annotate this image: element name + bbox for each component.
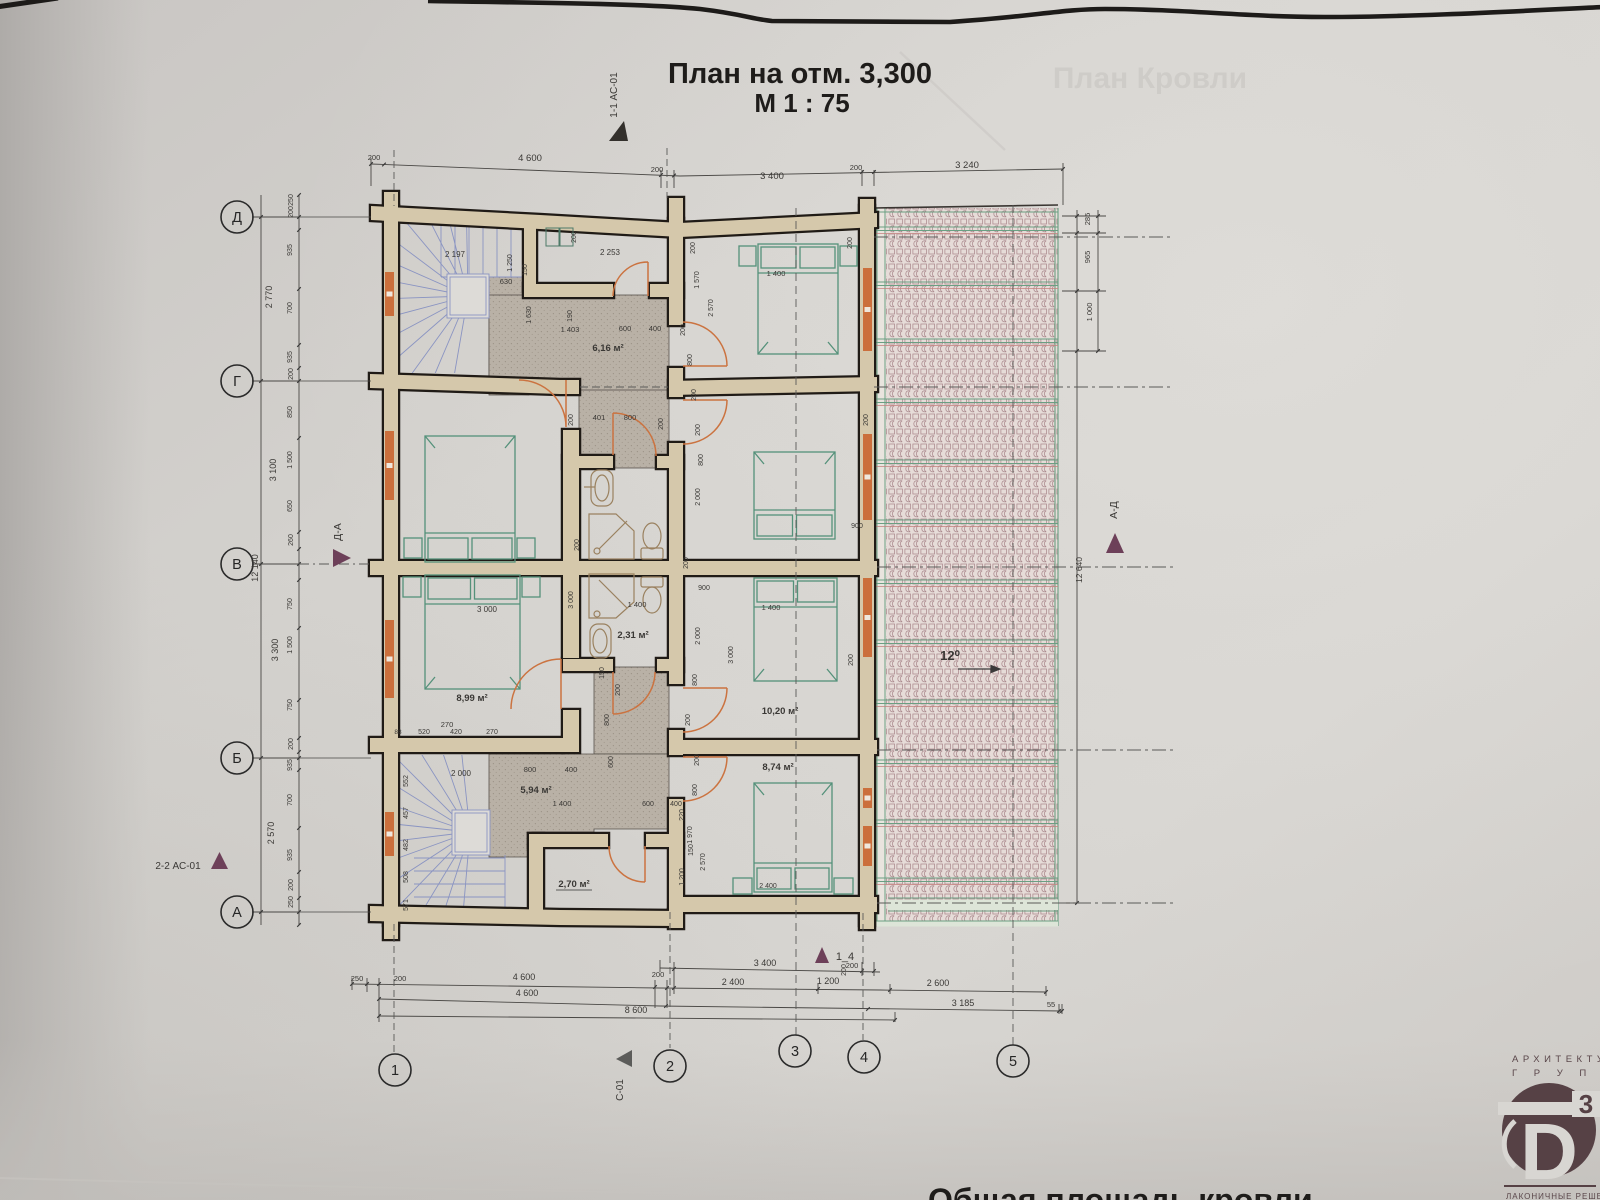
svg-text:Г Р У П П: Г Р У П П	[1512, 1068, 1600, 1079]
svg-text:200: 200	[685, 714, 692, 726]
svg-text:2 600: 2 600	[927, 978, 950, 988]
svg-text:200: 200	[848, 654, 855, 666]
svg-text:200: 200	[568, 414, 575, 426]
svg-text:1 400: 1 400	[762, 603, 781, 612]
svg-text:1 403: 1 403	[561, 325, 580, 334]
svg-text:800: 800	[692, 674, 699, 686]
svg-text:ЛАКОНИЧНЫЕ РЕШЕНИЯ: ЛАКОНИЧНЫЕ РЕШЕНИЯ	[1506, 1192, 1600, 1200]
svg-text:2 570: 2 570	[266, 822, 276, 845]
svg-text:6,16 м²: 6,16 м²	[592, 343, 623, 354]
svg-text:2 000: 2 000	[695, 627, 702, 645]
svg-text:1 970: 1 970	[687, 826, 694, 844]
svg-text:3 100: 3 100	[268, 459, 278, 482]
svg-text:1 570: 1 570	[694, 271, 701, 289]
svg-text:850: 850	[287, 406, 294, 418]
svg-text:2 000: 2 000	[695, 488, 702, 506]
svg-text:2 400: 2 400	[722, 977, 745, 987]
svg-text:935: 935	[287, 244, 294, 256]
svg-text:200: 200	[847, 237, 854, 249]
svg-text:800: 800	[524, 765, 537, 774]
svg-text:2 000: 2 000	[451, 769, 472, 778]
svg-text:1 630: 1 630	[526, 306, 533, 324]
svg-text:4 600: 4 600	[513, 972, 536, 982]
svg-text:1-1 АС-01: 1-1 АС-01	[609, 72, 620, 118]
svg-text:965: 965	[1083, 251, 1092, 264]
svg-text:12 640: 12 640	[1074, 557, 1084, 583]
svg-text:3: 3	[791, 1044, 799, 1060]
svg-text:200: 200	[695, 424, 702, 436]
svg-text:935: 935	[287, 849, 294, 861]
svg-text:3 000: 3 000	[568, 591, 575, 609]
svg-text:220: 220	[679, 809, 686, 821]
svg-text:1 500: 1 500	[287, 636, 294, 654]
svg-text:700: 700	[287, 302, 294, 314]
svg-text:270: 270	[441, 720, 454, 729]
svg-text:55: 55	[1047, 1000, 1055, 1009]
svg-text:520: 520	[418, 729, 430, 736]
svg-text:200: 200	[651, 165, 664, 174]
svg-text:М 1 : 75: М 1 : 75	[754, 88, 849, 118]
svg-text:457: 457	[403, 807, 410, 819]
svg-text:420: 420	[450, 729, 462, 736]
svg-text:2 253: 2 253	[600, 248, 621, 257]
svg-text:508: 508	[403, 871, 410, 883]
svg-text:150: 150	[599, 667, 606, 679]
svg-text:800: 800	[698, 454, 705, 466]
svg-text:200: 200	[680, 324, 687, 336]
svg-text:D: D	[1520, 1107, 1578, 1196]
svg-text:935: 935	[287, 759, 294, 771]
svg-text:1 200: 1 200	[817, 976, 840, 986]
svg-text:200: 200	[571, 231, 578, 243]
svg-text:250: 250	[351, 974, 364, 983]
svg-text:4 600: 4 600	[518, 153, 542, 164]
svg-text:2-2 АС-01: 2-2 АС-01	[155, 861, 201, 872]
svg-text:2 570: 2 570	[700, 853, 707, 871]
svg-text:900: 900	[698, 585, 710, 592]
svg-text:400: 400	[670, 801, 682, 808]
svg-text:200: 200	[850, 163, 863, 172]
svg-text:2,70 м²: 2,70 м²	[558, 879, 589, 890]
svg-text:200: 200	[652, 970, 665, 979]
svg-text:Общая площадь кровли: Общая площадь кровли	[928, 1182, 1313, 1200]
svg-text:4: 4	[860, 1050, 868, 1066]
svg-text:150: 150	[688, 844, 695, 856]
svg-text:8,99 м²: 8,99 м²	[456, 693, 487, 704]
svg-text:1 000: 1 000	[1085, 303, 1094, 322]
svg-text:200: 200	[841, 964, 848, 976]
svg-text:План Кровли: План Кровли	[1053, 62, 1247, 95]
svg-text:400: 400	[649, 324, 662, 333]
svg-text:800: 800	[624, 413, 637, 422]
svg-text:Г: Г	[233, 374, 241, 390]
svg-text:900: 900	[851, 523, 863, 530]
svg-text:5: 5	[1009, 1054, 1017, 1070]
svg-text:200: 200	[658, 418, 665, 430]
svg-text:А: А	[232, 905, 242, 921]
svg-text:3 400: 3 400	[754, 958, 777, 968]
svg-text:1 400: 1 400	[628, 600, 647, 609]
svg-text:482: 482	[403, 839, 410, 851]
svg-text:630: 630	[500, 277, 513, 286]
svg-text:АРХИТЕКТУРН: АРХИТЕКТУРН	[1512, 1054, 1600, 1065]
svg-text:В: В	[232, 557, 242, 573]
svg-text:88: 88	[394, 729, 402, 736]
svg-text:250: 250	[288, 896, 295, 908]
svg-text:3 185: 3 185	[952, 998, 975, 1008]
svg-text:200: 200	[615, 684, 622, 696]
svg-text:700: 700	[287, 794, 294, 806]
svg-text:935: 935	[287, 351, 294, 363]
svg-text:4 600: 4 600	[516, 988, 539, 998]
svg-text:270: 270	[486, 729, 498, 736]
svg-text:2 197: 2 197	[445, 250, 466, 259]
svg-text:260: 260	[288, 534, 295, 546]
svg-text:200: 200	[694, 754, 701, 766]
svg-text:1 500: 1 500	[287, 451, 294, 469]
svg-text:600: 600	[608, 756, 615, 768]
svg-text:150: 150	[522, 264, 529, 276]
svg-text:1 200: 1 200	[679, 868, 686, 886]
svg-text:400: 400	[565, 765, 578, 774]
svg-text:Д-А: Д-А	[332, 523, 344, 541]
svg-text:1 250: 1 250	[507, 254, 514, 272]
svg-text:200: 200	[394, 974, 407, 983]
svg-text:3 240: 3 240	[955, 160, 979, 171]
svg-text:800: 800	[692, 784, 699, 796]
svg-text:200: 200	[288, 368, 295, 380]
svg-text:190: 190	[567, 310, 574, 322]
svg-text:1 400: 1 400	[553, 799, 572, 808]
svg-text:200: 200	[691, 389, 698, 401]
svg-text:250: 250	[288, 194, 295, 206]
svg-text:12⁰: 12⁰	[940, 648, 960, 663]
svg-text:200: 200	[288, 738, 295, 750]
svg-text:3 000: 3 000	[728, 646, 735, 664]
svg-text:401: 401	[593, 413, 606, 422]
svg-text:3 400: 3 400	[760, 171, 784, 182]
svg-text:8,74 м²: 8,74 м²	[762, 762, 793, 773]
svg-text:2: 2	[666, 1059, 674, 1075]
svg-text:5,94 м²: 5,94 м²	[520, 785, 551, 796]
svg-text:600: 600	[619, 324, 632, 333]
svg-text:2 400: 2 400	[759, 883, 777, 890]
svg-text:200: 200	[683, 557, 690, 569]
svg-text:2 770: 2 770	[264, 286, 274, 309]
svg-text:800: 800	[687, 354, 694, 366]
svg-text:552: 552	[403, 775, 410, 787]
svg-text:10,20 м²: 10,20 м²	[762, 706, 799, 717]
svg-text:Д: Д	[232, 210, 242, 226]
svg-text:200: 200	[574, 539, 581, 551]
svg-text:200: 200	[288, 206, 295, 218]
svg-text:8 600: 8 600	[625, 1005, 648, 1015]
svg-text:2 570: 2 570	[708, 299, 715, 317]
svg-text:200: 200	[368, 153, 381, 162]
svg-text:800: 800	[604, 714, 611, 726]
svg-text:600: 600	[642, 801, 654, 808]
svg-text:200: 200	[288, 879, 295, 891]
svg-text:А-Д: А-Д	[1108, 501, 1120, 519]
svg-text:3 000: 3 000	[477, 605, 498, 614]
svg-text:План на отм. 3,300: План на отм. 3,300	[668, 58, 932, 90]
svg-text:200: 200	[863, 414, 870, 426]
svg-text:С-01: С-01	[615, 1079, 626, 1101]
svg-text:750: 750	[287, 598, 294, 610]
svg-text:2,31 м²: 2,31 м²	[617, 630, 648, 641]
svg-text:12 140: 12 140	[250, 554, 260, 582]
svg-text:3: 3	[1579, 1089, 1593, 1119]
svg-text:571: 571	[403, 899, 410, 911]
svg-text:Б: Б	[232, 751, 242, 767]
svg-text:1 400: 1 400	[767, 269, 786, 278]
svg-text:650: 650	[287, 500, 294, 512]
svg-text:285: 285	[1083, 213, 1092, 226]
svg-text:1: 1	[391, 1063, 399, 1079]
svg-text:3 300: 3 300	[270, 639, 280, 662]
svg-text:750: 750	[287, 699, 294, 711]
svg-text:200: 200	[690, 242, 697, 254]
